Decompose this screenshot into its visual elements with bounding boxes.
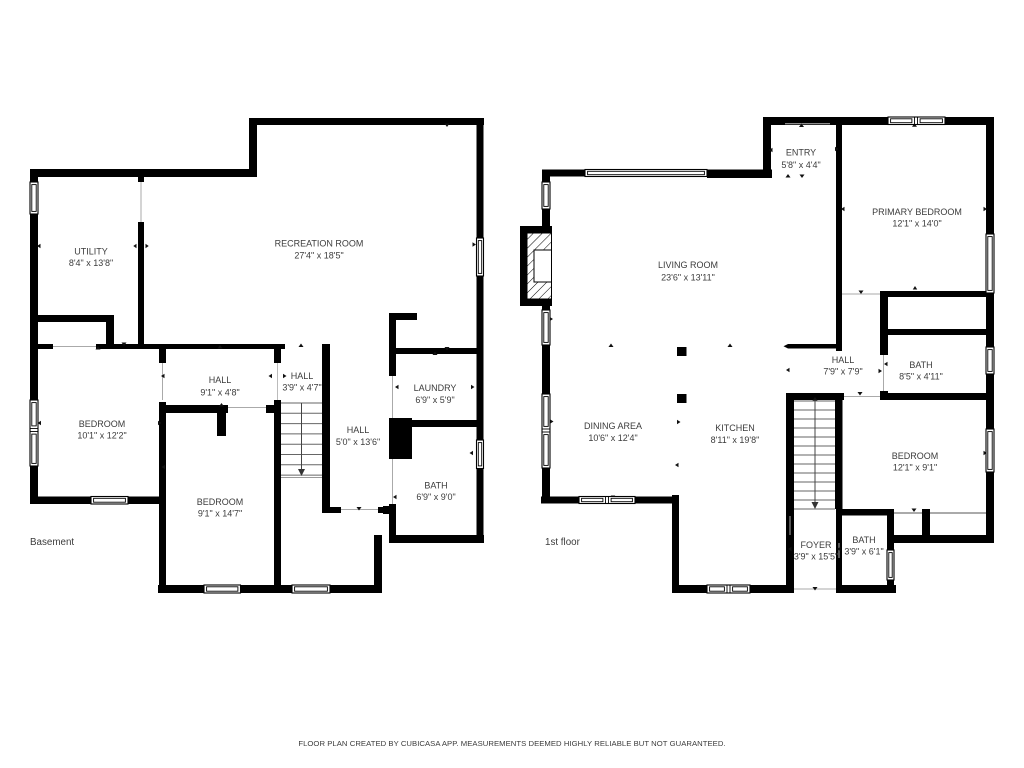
svg-text:23'6" x 13'11": 23'6" x 13'11" bbox=[661, 273, 715, 283]
svg-text:DINING AREA: DINING AREA bbox=[584, 421, 642, 431]
svg-text:BEDROOM: BEDROOM bbox=[79, 419, 126, 429]
svg-text:12'1" x 9'1": 12'1" x 9'1" bbox=[893, 463, 937, 473]
svg-text:10'1" x 12'2": 10'1" x 12'2" bbox=[77, 431, 126, 441]
svg-text:5'0" x 13'6": 5'0" x 13'6" bbox=[336, 437, 380, 447]
svg-text:BEDROOM: BEDROOM bbox=[197, 497, 244, 507]
svg-text:HALL: HALL bbox=[347, 425, 370, 435]
svg-text:HALL: HALL bbox=[209, 375, 232, 385]
svg-text:LAUNDRY: LAUNDRY bbox=[414, 383, 457, 393]
svg-text:27'4" x 18'5": 27'4" x 18'5" bbox=[294, 251, 343, 261]
svg-text:6'9" x 5'9": 6'9" x 5'9" bbox=[415, 395, 454, 405]
svg-text:HALL: HALL bbox=[291, 371, 314, 381]
svg-text:BATH: BATH bbox=[424, 481, 447, 491]
svg-text:FOYER: FOYER bbox=[800, 540, 832, 550]
svg-text:FLOOR PLAN CREATED BY CUBICASA: FLOOR PLAN CREATED BY CUBICASA APP. MEAS… bbox=[298, 739, 725, 748]
svg-text:8'5" x 4'11": 8'5" x 4'11" bbox=[899, 372, 943, 382]
svg-text:9'1" x 4'8": 9'1" x 4'8" bbox=[200, 388, 239, 398]
svg-text:3'9" x 4'7": 3'9" x 4'7" bbox=[282, 383, 321, 393]
svg-text:8'11" x 19'8": 8'11" x 19'8" bbox=[711, 435, 760, 445]
svg-text:9'1" x 14'7": 9'1" x 14'7" bbox=[198, 509, 242, 519]
svg-text:10'6" x 12'4": 10'6" x 12'4" bbox=[588, 433, 637, 443]
svg-text:6'9" x 9'0": 6'9" x 9'0" bbox=[416, 492, 455, 502]
svg-text:BATH: BATH bbox=[852, 535, 875, 545]
svg-text:PRIMARY BEDROOM: PRIMARY BEDROOM bbox=[872, 207, 962, 217]
svg-text:BEDROOM: BEDROOM bbox=[892, 451, 939, 461]
svg-text:KITCHEN: KITCHEN bbox=[715, 423, 755, 433]
svg-text:5'8" x 4'4": 5'8" x 4'4" bbox=[781, 160, 820, 170]
svg-text:ENTRY: ENTRY bbox=[786, 148, 816, 158]
svg-text:UTILITY: UTILITY bbox=[74, 247, 108, 257]
svg-text:12'1" x 14'0": 12'1" x 14'0" bbox=[892, 219, 941, 229]
svg-text:8'4" x 13'8": 8'4" x 13'8" bbox=[69, 258, 113, 268]
svg-text:7'9" x 7'9": 7'9" x 7'9" bbox=[823, 367, 862, 377]
svg-text:BATH: BATH bbox=[909, 360, 932, 370]
svg-text:3'9" x 15'5": 3'9" x 15'5" bbox=[794, 552, 838, 562]
svg-text:Basement: Basement bbox=[30, 537, 74, 548]
svg-text:1st floor: 1st floor bbox=[545, 537, 581, 548]
svg-text:RECREATION ROOM: RECREATION ROOM bbox=[275, 239, 364, 249]
svg-text:HALL: HALL bbox=[832, 355, 855, 365]
svg-text:3'9" x 6'1": 3'9" x 6'1" bbox=[844, 547, 883, 557]
svg-text:LIVING ROOM: LIVING ROOM bbox=[658, 260, 718, 270]
